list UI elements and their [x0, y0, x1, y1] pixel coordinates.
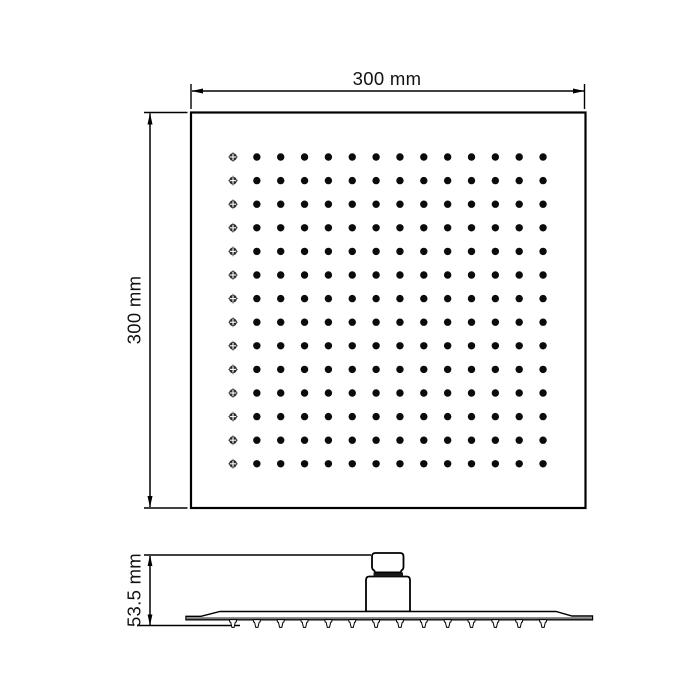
spray-hole [492, 271, 499, 278]
spray-hole [301, 177, 308, 184]
spray-hole [516, 413, 523, 420]
spray-hole [277, 271, 284, 278]
spray-hole [325, 271, 332, 278]
spray-hole [277, 437, 284, 444]
nozzle-row [229, 620, 546, 628]
spray-hole [349, 295, 356, 302]
spray-hole [420, 319, 427, 326]
spray-hole [253, 177, 260, 184]
spray-hole [420, 460, 427, 467]
nozzle [349, 620, 356, 628]
spray-hole [301, 295, 308, 302]
spray-hole [444, 437, 451, 444]
spray-hole [396, 248, 403, 255]
spray-hole [349, 413, 356, 420]
spray-hole [396, 271, 403, 278]
width-dimension: 300 mm [191, 68, 585, 109]
spray-hole [396, 224, 403, 231]
spray-hole [516, 271, 523, 278]
spray-hole [277, 366, 284, 373]
spray-hole [349, 224, 356, 231]
spray-hole [396, 201, 403, 208]
spray-hole [253, 389, 260, 396]
spray-hole [539, 413, 546, 420]
nozzle [396, 620, 403, 628]
spray-hole [325, 389, 332, 396]
spray-hole [492, 295, 499, 302]
spray-hole [492, 248, 499, 255]
spray-hole [539, 366, 546, 373]
spray-hole [492, 389, 499, 396]
technical-drawing-page: 300 mm 300 mm 53.5 mm [0, 0, 700, 700]
spray-hole [372, 201, 379, 208]
spray-hole [372, 248, 379, 255]
spray-hole [396, 366, 403, 373]
arrow-up-icon [148, 113, 153, 125]
spray-hole [516, 224, 523, 231]
spray-hole [420, 248, 427, 255]
spray-hole [420, 271, 427, 278]
arrow-down-icon [148, 496, 153, 508]
spray-hole [277, 153, 284, 160]
spray-hole [253, 413, 260, 420]
spray-hole [444, 177, 451, 184]
spray-hole [420, 389, 427, 396]
spray-hole [349, 153, 356, 160]
spray-hole [349, 366, 356, 373]
spray-hole [396, 413, 403, 420]
spray-hole [396, 295, 403, 302]
spray-hole [468, 413, 475, 420]
spray-hole [396, 153, 403, 160]
spray-hole [372, 224, 379, 231]
spray-hole [444, 366, 451, 373]
spray-hole [492, 342, 499, 349]
spray-hole [468, 437, 475, 444]
spray-hole [444, 342, 451, 349]
spray-hole [301, 460, 308, 467]
spray-hole [372, 177, 379, 184]
spray-hole [468, 271, 475, 278]
spray-hole [468, 177, 475, 184]
spray-hole [253, 460, 260, 467]
spray-hole [325, 319, 332, 326]
nozzle [373, 620, 380, 628]
top-view [191, 113, 586, 509]
spray-hole [277, 342, 284, 349]
spray-hole [516, 389, 523, 396]
spray-hole [420, 224, 427, 231]
spray-hole [277, 413, 284, 420]
nozzle [468, 620, 475, 628]
spray-hole [325, 342, 332, 349]
spray-hole [372, 389, 379, 396]
spray-hole [277, 295, 284, 302]
spray-hole [516, 177, 523, 184]
top-view-outline [191, 113, 586, 509]
spray-hole [468, 248, 475, 255]
spray-hole [325, 413, 332, 420]
spray-hole [492, 437, 499, 444]
spray-hole [349, 389, 356, 396]
connector-base-block [366, 577, 410, 612]
nozzle [539, 620, 546, 628]
spray-hole [301, 201, 308, 208]
spray-hole [277, 248, 284, 255]
spray-hole [253, 271, 260, 278]
nozzle [277, 620, 284, 628]
spray-hole [468, 389, 475, 396]
spray-hole [349, 177, 356, 184]
spray-hole [325, 460, 332, 467]
spray-hole [444, 201, 451, 208]
nozzle [420, 620, 427, 628]
spray-hole [325, 153, 332, 160]
spray-hole [492, 224, 499, 231]
spray-hole [492, 460, 499, 467]
spray-hole [539, 248, 546, 255]
spray-hole [444, 271, 451, 278]
spray-hole [420, 342, 427, 349]
spray-hole [468, 460, 475, 467]
spray-hole [325, 248, 332, 255]
spray-hole [539, 342, 546, 349]
spray-hole [539, 177, 546, 184]
spray-hole [349, 460, 356, 467]
spray-hole [444, 153, 451, 160]
spray-hole [468, 295, 475, 302]
arrow-down-icon [148, 615, 153, 626]
spray-hole [516, 319, 523, 326]
spray-hole [444, 460, 451, 467]
height-dimension-label: 300 mm [124, 276, 145, 345]
spray-hole [539, 224, 546, 231]
spray-hole [325, 295, 332, 302]
spray-hole [492, 153, 499, 160]
spray-hole [539, 319, 546, 326]
spray-hole [468, 153, 475, 160]
spray-hole [277, 201, 284, 208]
spray-hole [539, 437, 546, 444]
spray-hole [444, 295, 451, 302]
spray-hole [325, 177, 332, 184]
spray-hole [516, 437, 523, 444]
width-dimension-label: 300 mm [353, 68, 422, 89]
spray-hole [516, 342, 523, 349]
spray-hole [420, 413, 427, 420]
spray-hole [325, 437, 332, 444]
spray-hole [420, 295, 427, 302]
spray-hole [301, 342, 308, 349]
spray-hole [492, 177, 499, 184]
spray-hole [253, 248, 260, 255]
spray-hole [468, 342, 475, 349]
spray-hole [539, 460, 546, 467]
spray-hole [301, 271, 308, 278]
spray-hole [325, 224, 332, 231]
nozzle [301, 620, 308, 628]
spray-hole [468, 224, 475, 231]
spray-hole [301, 248, 308, 255]
spray-hole [372, 295, 379, 302]
spray-hole [253, 342, 260, 349]
spray-hole [468, 201, 475, 208]
spray-hole [253, 366, 260, 373]
nozzle [253, 620, 260, 628]
spray-hole [516, 295, 523, 302]
nozzle [492, 620, 499, 628]
spray-hole [301, 153, 308, 160]
spray-hole [349, 271, 356, 278]
spray-hole [325, 366, 332, 373]
spray-hole [277, 319, 284, 326]
arrow-up-icon [148, 555, 153, 566]
arrow-right-icon [573, 89, 585, 94]
spray-hole [372, 366, 379, 373]
spray-hole [253, 224, 260, 231]
spray-hole [492, 201, 499, 208]
spray-hole [516, 366, 523, 373]
spray-hole [253, 153, 260, 160]
spray-hole [349, 342, 356, 349]
spray-hole [468, 366, 475, 373]
spray-hole [372, 342, 379, 349]
height-dimension: 300 mm [124, 113, 188, 509]
plate-face-band [187, 617, 592, 619]
spray-hole [539, 271, 546, 278]
spray-hole [516, 248, 523, 255]
spray-hole [372, 319, 379, 326]
spray-hole [539, 201, 546, 208]
spray-hole [253, 295, 260, 302]
spray-hole [349, 248, 356, 255]
spray-hole [444, 413, 451, 420]
spray-hole [444, 319, 451, 326]
spray-hole [539, 153, 546, 160]
spray-hole [253, 201, 260, 208]
spray-hole [349, 319, 356, 326]
spray-hole [253, 319, 260, 326]
spray-hole [539, 389, 546, 396]
spray-hole [420, 437, 427, 444]
connector-nut [372, 553, 404, 572]
side-view [186, 553, 593, 627]
spray-hole [325, 201, 332, 208]
spray-hole [277, 177, 284, 184]
spray-hole [372, 153, 379, 160]
nozzle [444, 620, 451, 628]
spray-hole [444, 389, 451, 396]
spray-hole [349, 437, 356, 444]
spray-hole [516, 460, 523, 467]
spray-hole [301, 413, 308, 420]
spray-hole [420, 153, 427, 160]
spray-hole [301, 319, 308, 326]
spray-hole [277, 224, 284, 231]
nozzle [516, 620, 523, 628]
spray-hole [444, 224, 451, 231]
spray-hole [420, 177, 427, 184]
spray-hole [444, 248, 451, 255]
spray-hole [420, 201, 427, 208]
spray-hole [396, 389, 403, 396]
side-height-dimension-label: 53.5 mm [124, 553, 145, 627]
spray-hole [492, 319, 499, 326]
spray-hole [396, 177, 403, 184]
spray-hole [372, 271, 379, 278]
spray-hole [277, 460, 284, 467]
spray-hole [396, 460, 403, 467]
spray-hole [253, 437, 260, 444]
spray-hole [516, 153, 523, 160]
spray-hole [492, 366, 499, 373]
spray-hole [396, 342, 403, 349]
arrow-left-icon [192, 89, 204, 94]
spray-hole [349, 201, 356, 208]
spray-hole [396, 437, 403, 444]
spray-hole [516, 201, 523, 208]
spray-hole [372, 460, 379, 467]
spray-hole [372, 437, 379, 444]
spray-hole [492, 413, 499, 420]
nozzle [229, 620, 236, 628]
spray-hole [301, 366, 308, 373]
spray-hole [301, 224, 308, 231]
spray-hole [372, 413, 379, 420]
spray-hole [420, 366, 427, 373]
spray-hole [301, 437, 308, 444]
drawing-svg: 300 mm 300 mm 53.5 mm [0, 0, 700, 700]
spray-hole [277, 389, 284, 396]
nozzle [325, 620, 332, 628]
spray-hole [301, 389, 308, 396]
spray-hole [396, 319, 403, 326]
spray-hole [539, 295, 546, 302]
spray-hole [468, 319, 475, 326]
